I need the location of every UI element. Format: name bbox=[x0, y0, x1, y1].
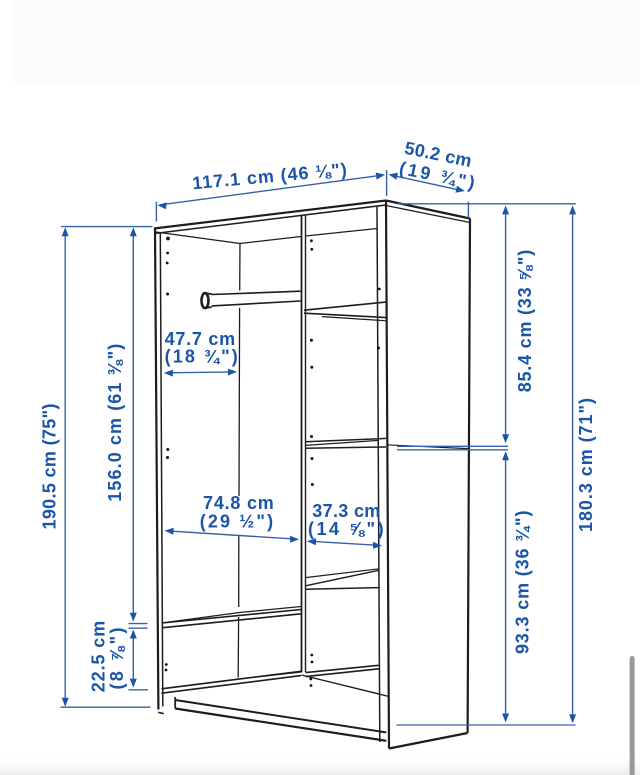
svg-text:117.1 cm (46 ⅛"): 117.1 cm (46 ⅛") bbox=[191, 159, 347, 193]
svg-text:(18 ¾"): (18 ¾") bbox=[165, 346, 238, 366]
svg-text:74.8 cm: 74.8 cm bbox=[203, 493, 274, 513]
svg-text:93.3 cm (36 ¾"): 93.3 cm (36 ¾") bbox=[513, 511, 533, 655]
svg-text:180.3 cm (71"): 180.3 cm (71") bbox=[576, 398, 596, 532]
svg-text:(14 ⅝"): (14 ⅝") bbox=[308, 519, 384, 539]
svg-text:(29 ½"): (29 ½") bbox=[200, 512, 273, 532]
svg-text:(8 ⅞"): (8 ⅞") bbox=[107, 628, 127, 690]
svg-text:37.3 cm: 37.3 cm bbox=[312, 501, 380, 521]
svg-text:85.4 cm (33 ⅝"): 85.4 cm (33 ⅝") bbox=[515, 250, 535, 393]
svg-text:22.5 cm: 22.5 cm bbox=[89, 621, 109, 693]
svg-text:156.0 cm (61 ⅜"): 156.0 cm (61 ⅜") bbox=[105, 344, 125, 502]
svg-text:190.5 cm (75"): 190.5 cm (75") bbox=[40, 404, 60, 530]
